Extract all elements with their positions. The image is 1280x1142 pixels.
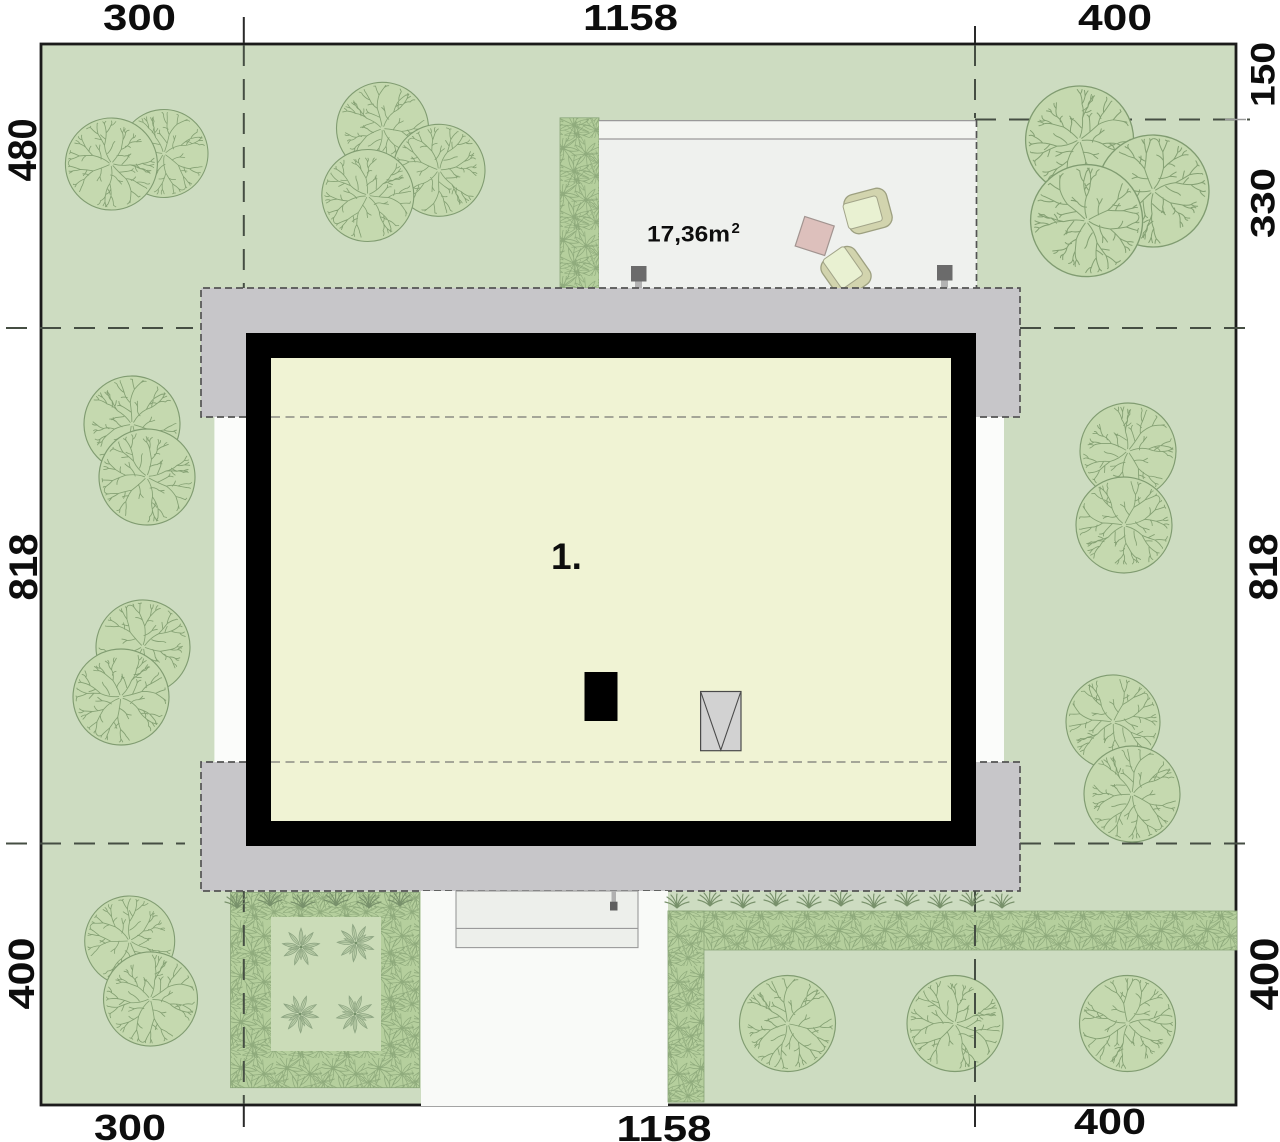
svg-text:400: 400: [1074, 1101, 1146, 1142]
svg-text:330: 330: [1245, 168, 1280, 238]
svg-text:300: 300: [94, 1107, 166, 1142]
svg-text:818: 818: [2, 534, 46, 601]
svg-text:17,36m: 17,36m: [647, 222, 730, 247]
svg-text:150: 150: [1245, 42, 1280, 107]
svg-text:818: 818: [1242, 534, 1280, 601]
svg-text:400: 400: [1, 938, 42, 1010]
svg-text:1158: 1158: [583, 0, 678, 38]
svg-text:300: 300: [103, 0, 176, 38]
svg-text:400: 400: [1243, 938, 1280, 1011]
svg-text:2: 2: [732, 220, 740, 237]
svg-text:400: 400: [1078, 0, 1152, 38]
svg-text:1158: 1158: [617, 1108, 712, 1142]
svg-text:1.: 1.: [551, 536, 582, 577]
svg-text:480: 480: [1, 119, 45, 182]
